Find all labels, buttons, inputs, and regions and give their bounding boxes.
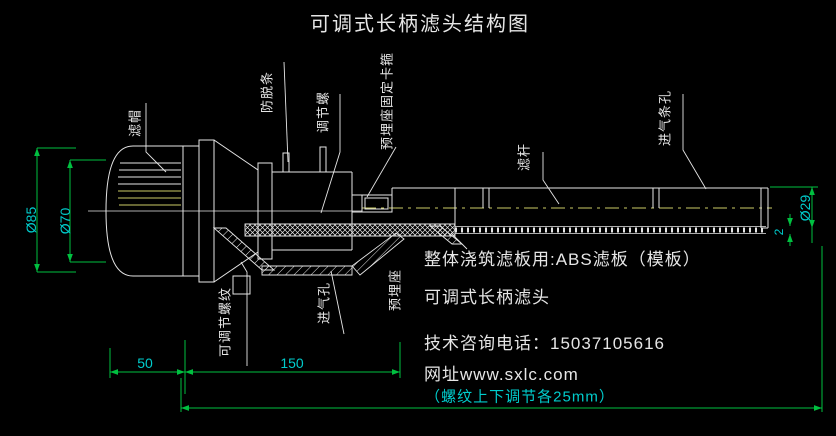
leader-anti-slip-strip (284, 62, 288, 162)
label-embedded-seat-clamp: 预埋座固定卡箍 (377, 52, 396, 150)
label-embedded-seat: 预埋座 (385, 269, 404, 311)
page-title: 可调式长柄滤头结构图 (310, 8, 530, 37)
leader-adjustable-thread (241, 262, 247, 366)
dim-text-thread-length: 150 (280, 355, 303, 371)
filter-plate-band (455, 227, 766, 234)
clamp-inner (365, 198, 388, 209)
label-adjustable-thread: 可调节螺纹 (215, 287, 234, 357)
leader-filter-cap (146, 103, 166, 172)
dim-text-rod-diameter: Ø29 (797, 195, 813, 221)
anti-slip-tab (320, 147, 326, 172)
dim-note-thread-adjust: （螺纹上下调节各25mm） (425, 386, 615, 407)
note-product-name: 可调式长柄滤头 (424, 283, 550, 308)
label-air-inlet-strip-holes: 进气条孔 (655, 90, 674, 146)
dim-text-outer-diameter: Ø85 (23, 207, 39, 233)
note-website: 网址www.sxlc.com (424, 360, 579, 385)
leader-air-strip-holes (683, 94, 706, 189)
dim-text-plate-thickness: 2 (772, 229, 786, 236)
leader-air-inlet-hole (331, 271, 344, 334)
dim-text-head-length: 50 (137, 355, 153, 371)
leader-filter-rod (543, 152, 559, 204)
cad-drawing-page: 可调式长柄滤头结构图 滤帽 防脱条 调节螺 预埋座固定卡箍 滤杆 进气条孔 可调… (0, 0, 836, 436)
note-plate-material: 整体浇筑滤板用:ABS滤板（模板） (424, 245, 701, 270)
dim-lengths (110, 340, 400, 394)
note-phone: 技术咨询电话：15037105616 (424, 329, 665, 354)
drawing-canvas (0, 0, 836, 436)
label-adjust-screw: 调节螺 (313, 91, 332, 133)
filter-plate-hatched (245, 224, 455, 236)
label-anti-slip-strip: 防脱条 (257, 71, 276, 113)
label-air-inlet-hole: 进气孔 (314, 282, 333, 324)
label-filter-rod: 滤杆 (514, 143, 533, 171)
centerline (88, 208, 772, 211)
label-filter-cap: 滤帽 (125, 109, 144, 137)
dim-text-inner-diameter: Ø70 (57, 208, 73, 234)
